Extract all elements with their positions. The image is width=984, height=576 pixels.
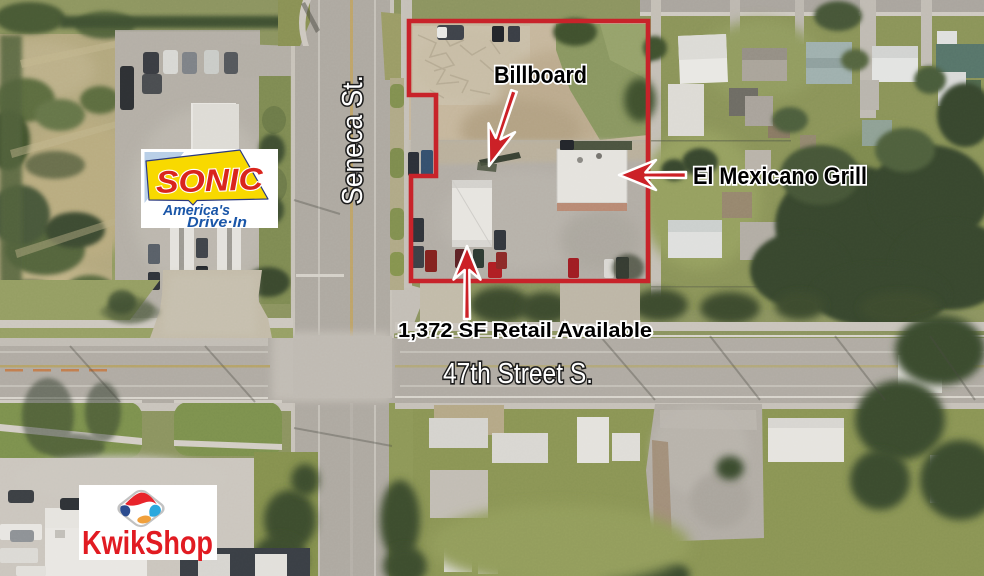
- svg-text:1,372 SF Retail Available: 1,372 SF Retail Available: [398, 320, 652, 342]
- svg-text:El Mexicano Grill: El Mexicano Grill: [693, 163, 867, 190]
- svg-text:Seneca St.: Seneca St.: [337, 75, 369, 205]
- svg-text:KwikShop: KwikShop: [82, 524, 213, 561]
- svg-text:47th Street S.: 47th Street S.: [443, 358, 593, 390]
- svg-text:SONIC: SONIC: [155, 161, 264, 200]
- svg-text:Billboard: Billboard: [494, 62, 587, 89]
- svg-text:Drive·In: Drive·In: [187, 214, 247, 231]
